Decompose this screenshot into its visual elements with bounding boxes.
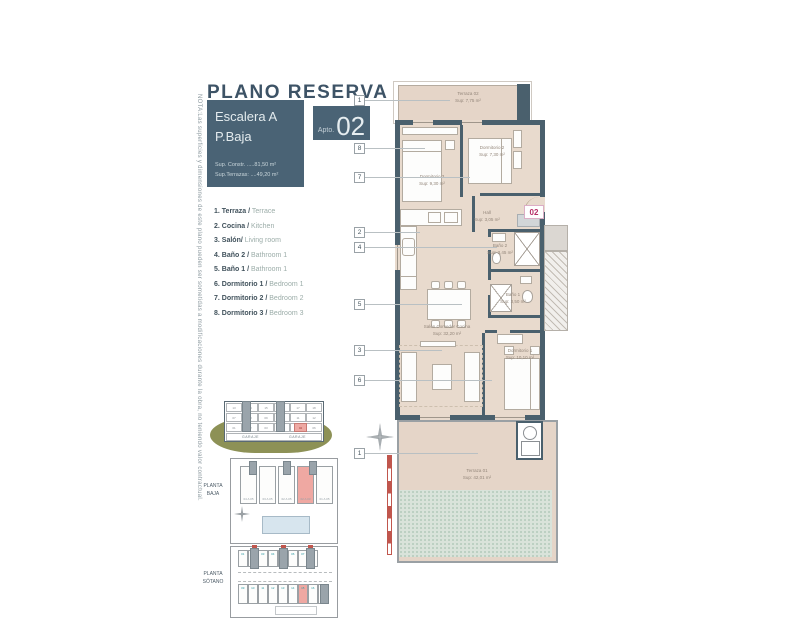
sofa (401, 352, 417, 402)
cooktop (428, 212, 441, 223)
scale-bar (387, 455, 392, 555)
legend-item: 1. Terraza / Terrace (214, 208, 304, 215)
legend-item: 3. Salón/ Living room (214, 237, 304, 244)
terrace-garden (399, 490, 552, 557)
legend-item: 8. Dormitorio 3 / Bedroom 3 (214, 310, 304, 317)
wall (460, 125, 463, 197)
plan-marker-5: 5 (354, 299, 365, 310)
fridge (400, 276, 417, 290)
stair-core (283, 461, 291, 475)
vent-mark (252, 545, 257, 548)
leader-line (365, 177, 470, 178)
leader-line (365, 232, 420, 233)
apto-label: Apto. (318, 127, 334, 134)
apartment-box: Apto. 02 (313, 106, 370, 140)
closet (513, 151, 522, 169)
chair (444, 281, 453, 289)
wall (517, 84, 530, 122)
sup-terrazas: Sup.Terrazas: ....49,20 m² (215, 171, 278, 180)
leader-line (365, 350, 442, 351)
plan-marker-4: 4 (354, 242, 365, 253)
plan-marker-6: 6 (354, 375, 365, 386)
stair-info-box: Escalera A P.Baja Sup. Constr. .....81,5… (207, 100, 304, 187)
bed (504, 358, 540, 410)
garaje-label: GARAJE (274, 434, 321, 440)
stair-core (242, 401, 251, 432)
compass-icon (366, 423, 394, 451)
window (397, 245, 398, 270)
highlighted-unit: 02 (294, 423, 307, 432)
room-legend: 1. Terraza / Terrace 2. Cocina / Kitchen… (214, 208, 304, 324)
plan-marker-8: 8 (354, 143, 365, 154)
legend-item: 4. Baño 2 / Bathroom 1 (214, 252, 304, 259)
unit-badge: 02 (524, 205, 544, 219)
ramp (275, 606, 317, 615)
room-label-dormitorio-2: Dormitorio 2Sup: 7,30 m² (479, 145, 505, 158)
coffee-table (432, 364, 452, 390)
plan-marker-1: 1 (354, 95, 365, 106)
plan-marker-7: 7 (354, 172, 365, 183)
stair-core (309, 461, 317, 475)
closet (513, 130, 522, 148)
room-label-bano-1: Baño 1Sup: 3,50 m² (500, 292, 526, 305)
drive-lane (238, 572, 332, 582)
window (495, 417, 525, 418)
wall (482, 120, 545, 125)
leader-line (365, 453, 478, 454)
wardrobe (402, 127, 458, 135)
stair-floor: P.Baja (215, 127, 296, 147)
section-row: 070809101112 (226, 413, 322, 422)
plan-marker-1b: 1 (354, 448, 365, 459)
window (420, 417, 450, 418)
plano-reserva-sheet: { "note": "NOTA:Las superficies y dimens… (0, 0, 800, 640)
plan-marker-2: 2 (354, 227, 365, 238)
wall (510, 330, 540, 333)
communal-stair (544, 251, 568, 331)
wall (488, 315, 540, 318)
legend-item: 2. Cocina / Kitchen (214, 223, 304, 230)
wall (480, 193, 540, 196)
room-label-salon: Salón Comedor CocinaSup: 32,20 m² (424, 324, 471, 337)
planta-sotano-label: PLANTASÓTANO (198, 570, 228, 586)
room-label-hall: HallSup: 3,05 m² (474, 210, 500, 223)
planta-baja-label: PLANTABAJA (198, 482, 228, 498)
room-label-dormitorio-1: Dormitorio 1Sup: 10,10 m² (506, 348, 534, 361)
vent-mark (281, 545, 286, 548)
wall (433, 120, 462, 125)
washer-icon (523, 426, 537, 440)
bathroom-sink (520, 276, 532, 284)
leader-line (365, 148, 425, 149)
storage-box (521, 441, 540, 456)
leader-line (365, 380, 492, 381)
room-label-terraza-01: Terraza 01Sup: 42,01 m² (463, 468, 491, 481)
plan-marker-3: 3 (354, 345, 365, 356)
stair-core (279, 548, 288, 569)
bed (402, 140, 442, 202)
stair-core (249, 461, 257, 475)
oven (444, 212, 458, 223)
legend-item: 6. Dormitorio 1 / Bedroom 1 (214, 281, 304, 288)
room-label-terraza-02: Terraza 02Sup: 7,75 m² (455, 91, 481, 104)
bathroom-sink (492, 233, 506, 242)
section-row: 131415161718 (226, 403, 322, 412)
compass-icon (234, 506, 250, 522)
legend-item: 7. Dormitorio 2 / Bedroom 2 (214, 295, 304, 302)
sotano-bottom-stalls: 091011121314151617 (238, 584, 328, 604)
disclaimer-note: NOTA:Las superficies y dimensiones de es… (196, 94, 202, 544)
chair (457, 281, 466, 289)
tv-bench (420, 341, 456, 347)
room-label-bano-2: Baño 2Sup: 3,45 m² (487, 243, 513, 256)
stair-core (306, 548, 315, 569)
garaje-label: GARAJE (227, 434, 274, 440)
room-label-dormitorio-3: Dormitorio 3Sup: 9,30 m² (419, 174, 445, 187)
leader-line (365, 304, 462, 305)
window (462, 122, 482, 123)
leader-line (365, 247, 497, 248)
sofa (464, 352, 480, 402)
wall (488, 229, 491, 237)
utility-closet (516, 421, 543, 460)
garage-band: GARAJE GARAJE (226, 433, 322, 441)
stair-core (276, 401, 285, 432)
stair-name: Escalera A (215, 107, 296, 127)
landing (544, 225, 568, 251)
window (413, 122, 433, 123)
apto-number: 02 (336, 115, 365, 137)
wall (488, 269, 540, 272)
sup-constr: Sup. Constr. .....81,50 m² (215, 161, 278, 170)
stair-core (250, 548, 259, 569)
wardrobe (497, 334, 523, 344)
vent-mark (308, 545, 313, 548)
wall (485, 330, 497, 333)
leader-line (365, 100, 450, 101)
pool (262, 516, 310, 534)
shower (514, 232, 540, 266)
stair-core (320, 584, 329, 604)
chair (431, 281, 440, 289)
section-row: 010203040506 (226, 423, 322, 432)
nightstand (445, 140, 455, 150)
legend-item: 5. Baño 1 / Bathroom 1 (214, 266, 304, 273)
wall (540, 120, 545, 197)
